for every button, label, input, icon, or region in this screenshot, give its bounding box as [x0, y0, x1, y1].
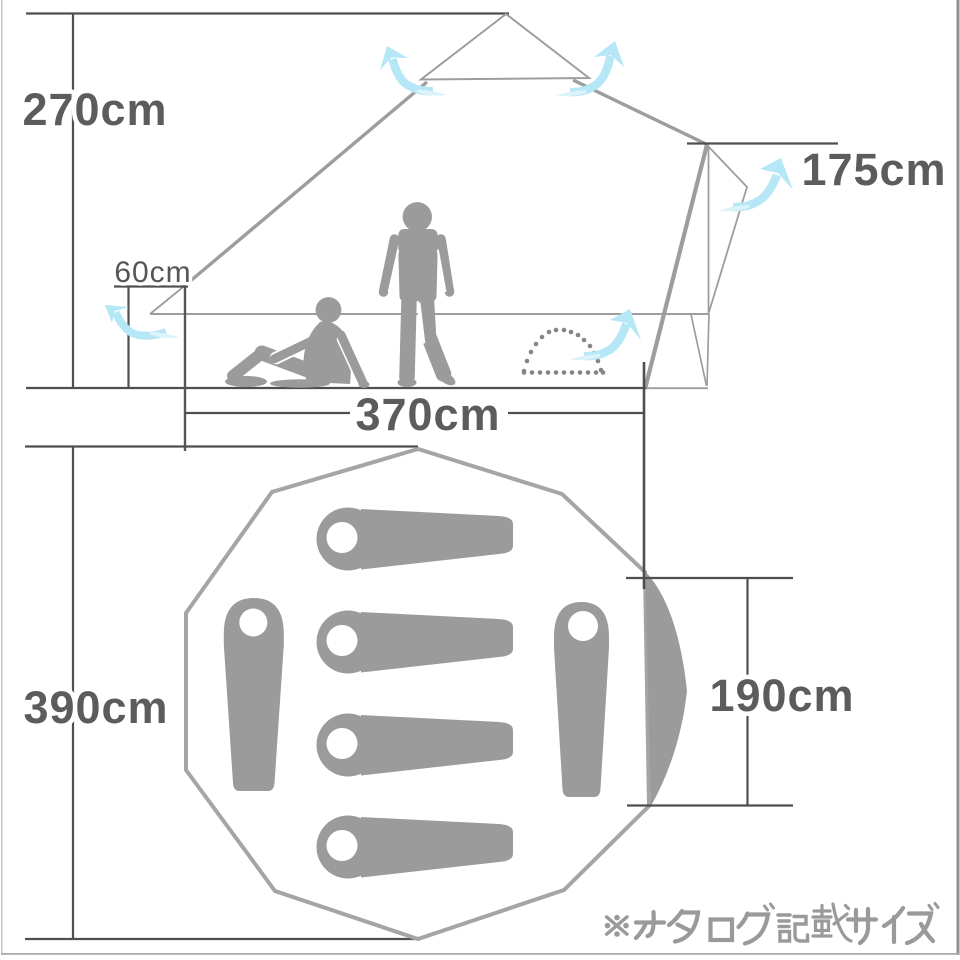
svg-text:175cm: 175cm: [801, 144, 946, 195]
svg-text:270cm: 270cm: [22, 84, 167, 135]
svg-text:370cm: 370cm: [355, 389, 500, 440]
svg-text:390cm: 390cm: [23, 682, 168, 733]
svg-text:60cm: 60cm: [114, 256, 191, 289]
svg-text:190cm: 190cm: [709, 670, 854, 721]
